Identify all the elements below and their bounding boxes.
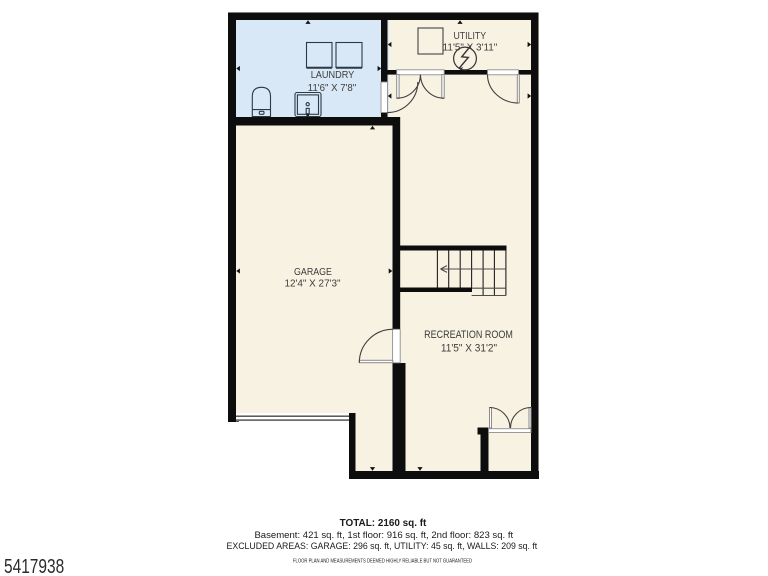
svg-text:Basement: 421 sq. ft, 1st floo: Basement: 421 sq. ft, 1st floor: 916 sq.… bbox=[254, 530, 513, 541]
svg-text:12'4" X 27'3": 12'4" X 27'3" bbox=[284, 278, 340, 289]
svg-text:11'5" X 3'11": 11'5" X 3'11" bbox=[443, 43, 498, 54]
svg-text:11'5" X 31'2": 11'5" X 31'2" bbox=[441, 343, 497, 355]
svg-text:RECREATION ROOM: RECREATION ROOM bbox=[424, 329, 513, 341]
svg-text:11'6" X 7'8": 11'6" X 7'8" bbox=[308, 83, 357, 94]
svg-text:FLOOR PLAN AND MEASUREMENTS DE: FLOOR PLAN AND MEASUREMENTS DEEMED HIGHL… bbox=[293, 558, 472, 564]
svg-text:5417938: 5417938 bbox=[4, 555, 64, 576]
svg-text:LAUNDRY: LAUNDRY bbox=[311, 70, 355, 81]
svg-text:EXCLUDED AREAS: GARAGE: 296 sq: EXCLUDED AREAS: GARAGE: 296 sq. ft, UTIL… bbox=[227, 541, 538, 552]
svg-text:GARAGE: GARAGE bbox=[294, 267, 332, 278]
svg-text:UTILITY: UTILITY bbox=[453, 31, 486, 42]
svg-text:TOTAL: 2160 sq. ft: TOTAL: 2160 sq. ft bbox=[340, 518, 427, 529]
